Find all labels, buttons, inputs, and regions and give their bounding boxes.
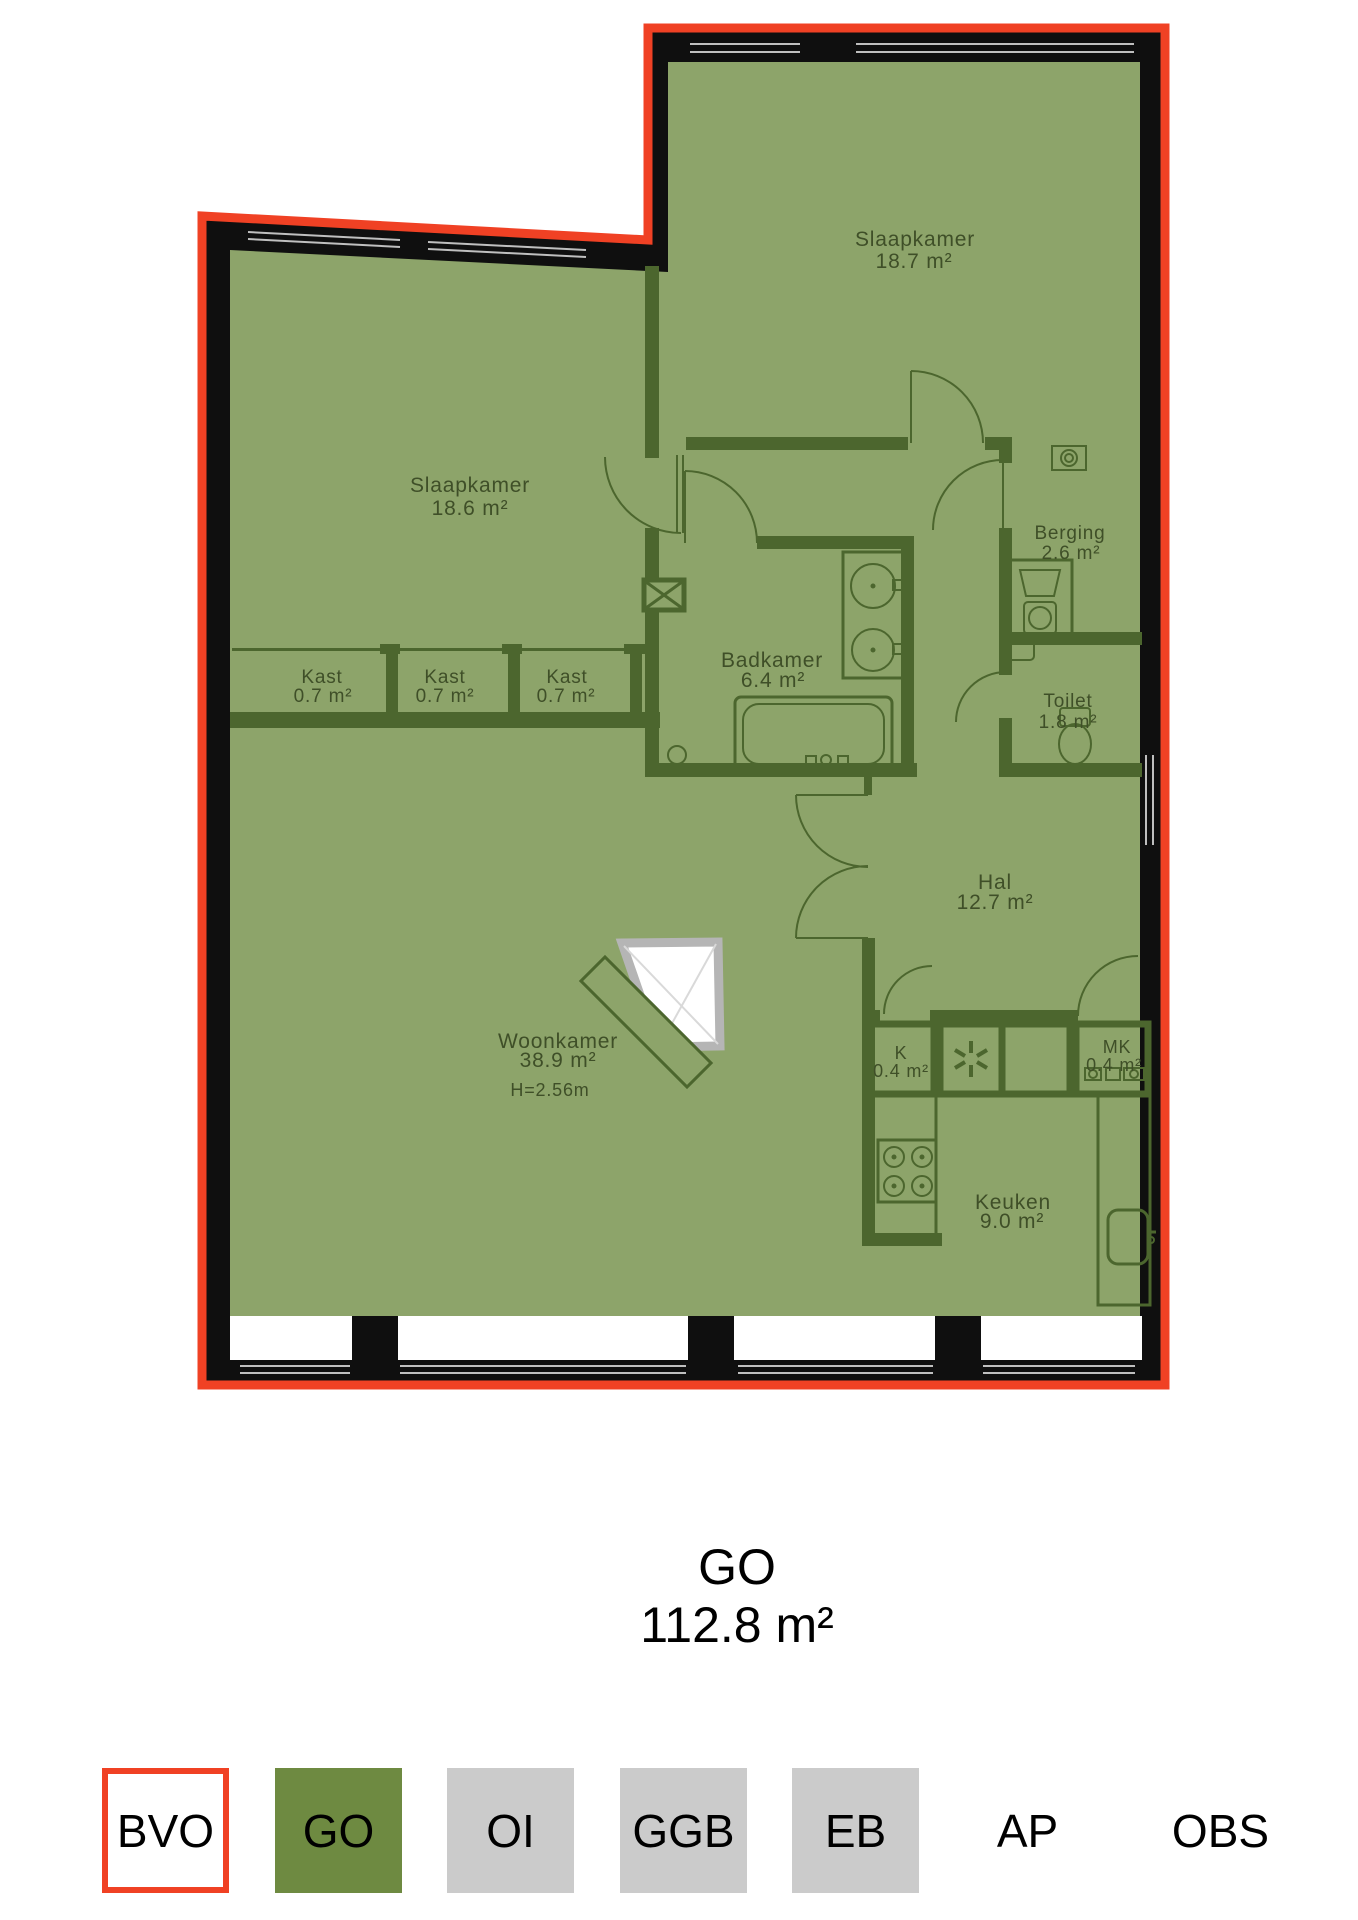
summary-value: 112.8 m² xyxy=(640,1596,834,1654)
room-berging: Berging 2.6 m² xyxy=(1034,523,1105,564)
room-name: Slaapkamer xyxy=(855,228,975,251)
legend-item-go: GO xyxy=(275,1768,402,1893)
legend-label: BVO xyxy=(117,1804,214,1858)
window-pier xyxy=(688,1316,734,1360)
legend-item-oi: OI xyxy=(447,1768,574,1893)
room-ceiling-height: H=2.56m xyxy=(510,1080,589,1100)
legend-label: AP xyxy=(997,1804,1058,1858)
window-pier xyxy=(352,1316,398,1360)
floorplan-drawing: Slaapkamer 18.6 m² Slaapkamer 18.7 m² Be… xyxy=(0,0,1358,1460)
room-area: 0.7 m² xyxy=(416,686,475,707)
room-area: 9.0 m² xyxy=(980,1210,1044,1233)
legend-item-obs: OBS xyxy=(1157,1768,1284,1893)
room-name: Kast xyxy=(424,667,465,688)
legend-label: EB xyxy=(825,1804,886,1858)
room-name: Kast xyxy=(546,667,587,688)
room-area: 18.7 m² xyxy=(876,250,953,273)
room-area: 0.7 m² xyxy=(294,686,353,707)
legend-item-eb: EB xyxy=(792,1768,919,1893)
room-kast-3: Kast 0.7 m² xyxy=(537,667,596,707)
area-summary: GO 112.8 m² xyxy=(640,1538,834,1654)
room-area: 1.8 m² xyxy=(1039,712,1098,733)
room-area: 6.4 m² xyxy=(741,669,805,692)
window-pier xyxy=(935,1316,981,1360)
legend-label: GGB xyxy=(632,1804,734,1858)
room-kast-2: Kast 0.7 m² xyxy=(416,667,475,707)
room-keuken: Keuken 9.0 m² xyxy=(975,1191,1051,1233)
room-area: 2.6 m² xyxy=(1042,543,1101,564)
legend-label: OBS xyxy=(1172,1804,1269,1858)
room-area: 0.4 m² xyxy=(1086,1055,1142,1075)
room-name: Kast xyxy=(301,667,342,688)
room-name: Berging xyxy=(1034,523,1105,544)
room-area: 0.7 m² xyxy=(537,686,596,707)
room-area: 38.9 m² xyxy=(520,1049,597,1072)
room-area: 0.4 m² xyxy=(873,1061,929,1081)
legend-label: GO xyxy=(303,1804,375,1858)
summary-label: GO xyxy=(640,1538,834,1596)
legend-item-ap: AP xyxy=(964,1768,1091,1893)
room-name: Slaapkamer xyxy=(410,474,530,497)
legend-item-bvo: BVO xyxy=(102,1768,229,1893)
legend-label: OI xyxy=(486,1804,535,1858)
floorplan-page: Slaapkamer 18.6 m² Slaapkamer 18.7 m² Be… xyxy=(0,0,1358,1920)
room-name: MK xyxy=(1103,1037,1132,1057)
legend-item-ggb: GGB xyxy=(620,1768,747,1893)
room-name: Toilet xyxy=(1043,691,1092,712)
room-toilet: Toilet 1.8 m² xyxy=(1039,691,1098,733)
room-area: 18.6 m² xyxy=(432,497,509,520)
room-area: 12.7 m² xyxy=(957,891,1034,914)
room-name: K xyxy=(895,1043,908,1063)
